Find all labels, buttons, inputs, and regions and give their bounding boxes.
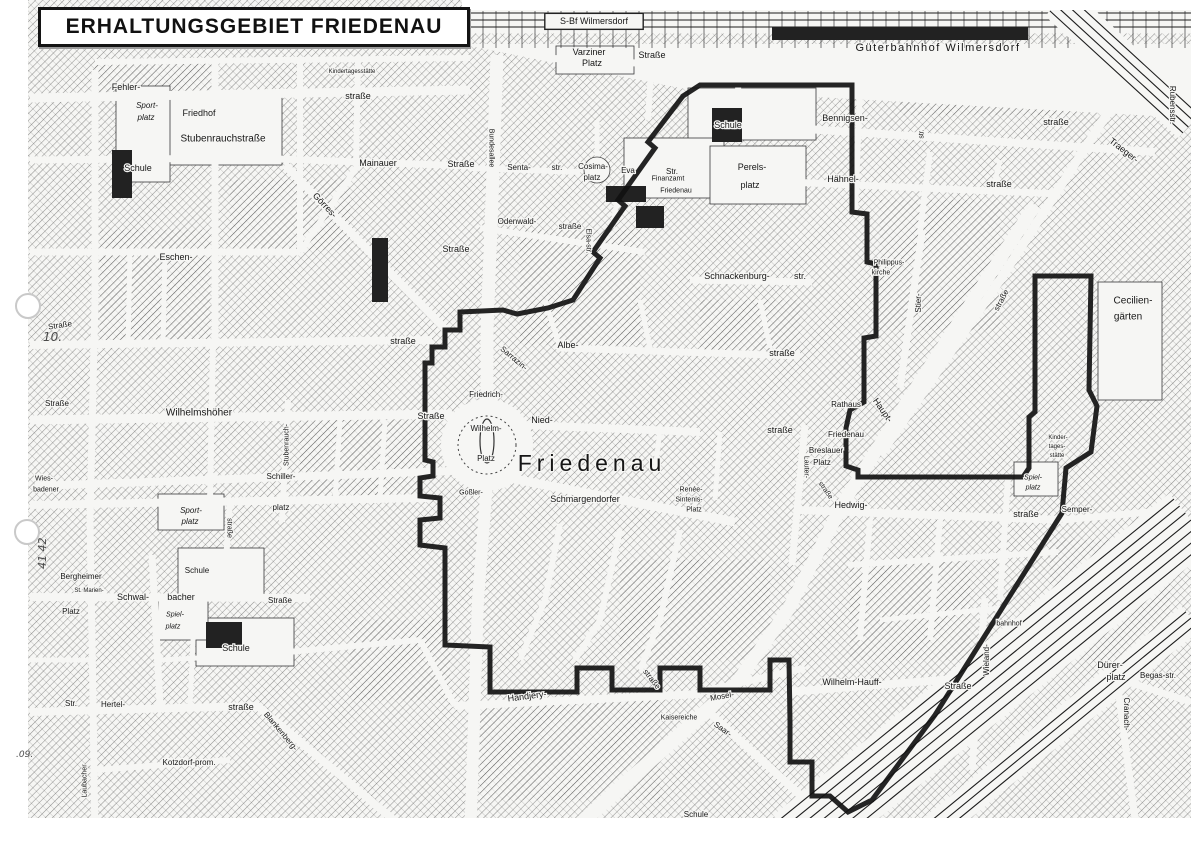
map-label: platz xyxy=(1106,672,1126,682)
map-label: str. xyxy=(794,271,806,281)
street xyxy=(210,342,213,500)
map-label: Dürer- xyxy=(1097,660,1123,670)
map-label: Fehler- xyxy=(112,82,141,92)
map-label: Spiel- xyxy=(1024,474,1043,481)
solid-building xyxy=(772,27,1028,40)
map-label: Güterbahnhof Wilmersdorf xyxy=(856,42,1021,54)
map-label: Laubacher xyxy=(81,764,88,798)
street xyxy=(90,520,93,700)
street xyxy=(30,340,432,345)
map-label: Straße xyxy=(442,244,469,254)
map-label: straße xyxy=(559,222,582,231)
map-label: Elsa-str. xyxy=(585,228,592,253)
street xyxy=(356,60,358,165)
map-label: Friedhof xyxy=(182,108,216,118)
map-label: Friedenau xyxy=(660,187,692,194)
map-label: Spiel- xyxy=(166,611,185,618)
map-label: Straße xyxy=(417,411,444,421)
map-label: gärten xyxy=(1114,312,1142,323)
map-label: Stier- xyxy=(914,293,923,312)
map-label: Platz xyxy=(62,607,80,616)
map-label: platz xyxy=(1025,484,1041,491)
map-label: Nied- xyxy=(531,415,553,425)
map-label: Straße xyxy=(447,159,474,169)
street xyxy=(128,252,130,345)
street xyxy=(90,300,95,520)
map-label: stätte xyxy=(1050,453,1065,459)
map-label: platz xyxy=(165,623,181,630)
map-label: Perels- xyxy=(738,162,767,172)
bottom-margin xyxy=(0,818,1191,842)
map-label: Kindertagesstätte xyxy=(329,69,376,75)
map-label: tages- xyxy=(1049,444,1066,450)
top-margin xyxy=(462,0,1191,10)
map-label: Schule xyxy=(185,566,210,575)
map-label: Kotzdorf-prom. xyxy=(163,758,216,767)
solid-building xyxy=(636,206,664,228)
solid-building xyxy=(112,150,132,198)
map-label: Friedenau xyxy=(518,450,667,476)
map-label: Sport- xyxy=(180,506,202,515)
margin-handwriting: 10. xyxy=(43,330,62,344)
map-label: platz xyxy=(273,503,290,512)
map-label: straße xyxy=(769,348,795,358)
map-label: Str. xyxy=(65,699,77,708)
dense-block xyxy=(700,300,800,350)
map-label: Schmargendorfer xyxy=(550,494,620,504)
map-label: Schule xyxy=(684,810,709,819)
map-label: Schule xyxy=(124,163,152,173)
map-label: straße xyxy=(228,702,254,712)
margin-handwriting: .09. xyxy=(16,750,33,760)
left-margin xyxy=(0,0,28,842)
map-label: straße xyxy=(1013,509,1039,519)
map-label: kirche xyxy=(872,269,891,276)
map-label: Wilhelmshöher xyxy=(166,408,233,419)
map-label: St. Marien- xyxy=(74,588,103,594)
map-label: S-Bf Wilmersdorf xyxy=(560,16,629,26)
map-label: Cosima- xyxy=(578,162,608,171)
map-label: Mainauer xyxy=(359,158,397,168)
map-label: Finanzamt xyxy=(652,175,685,182)
map-label: straße xyxy=(767,425,793,435)
map-label: straße xyxy=(226,518,233,538)
map-label: Platz xyxy=(477,454,495,463)
map-label: Platz xyxy=(813,458,831,467)
map-label: bahnhof xyxy=(996,620,1021,627)
map-label: Lauter- xyxy=(803,456,810,479)
open-area xyxy=(710,146,806,204)
map-label: Cecilien- xyxy=(1114,296,1153,307)
map-label: platz xyxy=(181,517,199,526)
map-title: ERHALTUNGSGEBIET FRIEDENAU xyxy=(66,15,443,39)
map-label: Eschen- xyxy=(159,252,192,262)
dense-block xyxy=(620,560,770,660)
map-label: Stubenrauchstraße xyxy=(180,134,265,145)
map-label: Hertel- xyxy=(101,700,125,709)
map-canvas: Str.VarzinerPlatzStraßeGüterbahnhof Wilm… xyxy=(0,0,1191,842)
map-label: Wilhelm-Hauff- xyxy=(822,677,881,687)
map-label: platz xyxy=(137,113,155,122)
map-label: Semper- xyxy=(1062,505,1093,514)
map-label: Sintenis- xyxy=(675,496,703,503)
map-label: Philippus- xyxy=(874,259,905,266)
map-label: Schule xyxy=(222,643,250,653)
map-label: straße xyxy=(345,91,371,101)
map-label: Platz xyxy=(686,506,702,513)
solid-building xyxy=(372,238,388,302)
dense-block xyxy=(300,420,420,495)
map-label: Hedwig- xyxy=(834,500,867,510)
street xyxy=(163,252,165,345)
map-label: Straße xyxy=(944,681,971,691)
map-label: platz xyxy=(740,180,760,190)
map-label: Senta- xyxy=(507,163,531,172)
street xyxy=(648,56,652,120)
map-label: str. xyxy=(552,163,563,172)
dense-block xyxy=(350,620,450,700)
map-label: straße xyxy=(986,179,1012,189)
margin-handwriting: 41 42 xyxy=(36,538,49,570)
map-label: Stubenrauch- xyxy=(283,423,290,466)
map-label: str. xyxy=(918,129,925,138)
map-label: Str. xyxy=(666,167,678,176)
map-label: Wilhelm- xyxy=(470,424,501,433)
map-label: Hähnel- xyxy=(827,174,859,184)
map-label: Albe- xyxy=(557,340,578,350)
map-label: Platz xyxy=(582,58,603,68)
map-label: badener xyxy=(33,486,59,493)
map-label: Bennigsen- xyxy=(822,113,868,123)
map-label: Varziner xyxy=(573,47,606,57)
map-label: bacher xyxy=(167,592,195,602)
map-label: Schiller- xyxy=(267,472,296,481)
hole-punch xyxy=(16,294,40,318)
dense-block xyxy=(100,230,210,340)
map-label: Schwal- xyxy=(117,592,149,602)
map-label: platz xyxy=(584,173,601,182)
map-label: Bundesallee xyxy=(488,129,495,168)
street xyxy=(95,58,470,62)
map-label: Wies- xyxy=(35,475,54,482)
map-title-box: ERHALTUNGSGEBIET FRIEDENAU xyxy=(38,7,470,47)
map-label: Bergheimer xyxy=(60,572,102,581)
scanned-map-page: Str.VarzinerPlatzStraßeGüterbahnhof Wilm… xyxy=(0,0,1191,842)
open-area xyxy=(158,598,208,640)
map-label: Schnackenburg- xyxy=(704,271,770,281)
map-label: Straße xyxy=(45,399,70,408)
map-label: Wieland- xyxy=(982,644,991,676)
map-label: Straße xyxy=(268,596,293,605)
map-label: Sport- xyxy=(136,101,158,110)
map-label: Rathaus xyxy=(831,400,861,409)
map-label: Begas-str. xyxy=(1140,671,1176,680)
map-label: Schule xyxy=(714,120,742,130)
map-label: Rubensstr. xyxy=(1168,86,1177,124)
map-label: Eva xyxy=(621,166,635,175)
map-label: Friedenau xyxy=(828,430,864,439)
map-label: Renée- xyxy=(680,486,704,493)
map-label: Straße xyxy=(638,50,665,60)
map-label: Kaisereiche xyxy=(661,714,698,721)
map-label: Cranach- xyxy=(1122,698,1131,731)
map-label: straße xyxy=(1043,117,1069,127)
map-label: straße xyxy=(390,336,416,346)
map-label: Kinder- xyxy=(1048,435,1067,441)
map-label: Goßler- xyxy=(459,489,483,496)
map-label: Friedrich- xyxy=(469,390,503,399)
map-label: Odenwald- xyxy=(498,217,537,226)
map-label: Breslauer xyxy=(809,446,844,455)
